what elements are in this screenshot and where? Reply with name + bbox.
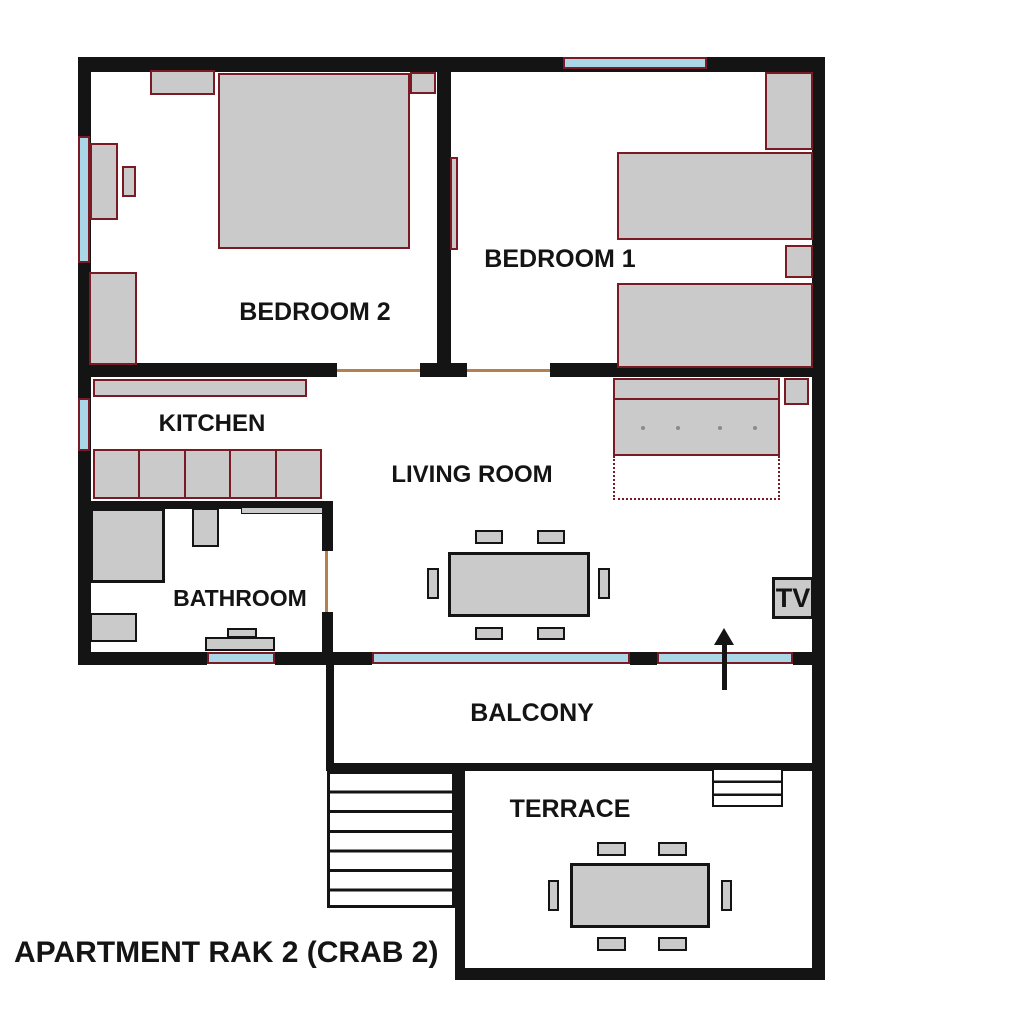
bedroom2-nightstand bbox=[410, 72, 436, 94]
wall-terrace-left bbox=[455, 763, 465, 980]
terrace-chair bbox=[548, 880, 559, 911]
tv-label: TV bbox=[776, 583, 811, 614]
window-bedroom1 bbox=[563, 57, 707, 69]
kitchen-counter-unit bbox=[95, 451, 138, 497]
bedroom2-dresser bbox=[90, 143, 118, 220]
bathroom-shower bbox=[90, 508, 165, 583]
terrace-steps bbox=[712, 768, 783, 807]
dining-chair bbox=[537, 530, 565, 544]
dining-table bbox=[448, 552, 590, 617]
kitchen-counter-unit bbox=[186, 451, 229, 497]
sofa-button bbox=[641, 426, 645, 430]
dining-chair bbox=[598, 568, 610, 599]
kitchen-counter-unit bbox=[140, 451, 183, 497]
sofa-bed-extension bbox=[613, 456, 780, 500]
wall bbox=[275, 652, 372, 665]
door-bedroom2 bbox=[337, 369, 420, 372]
wall-balcony-left bbox=[326, 665, 334, 771]
window-kitchen bbox=[78, 398, 90, 451]
dining-chair bbox=[537, 627, 565, 640]
room-label-bedroom1: BEDROOM 1 bbox=[460, 246, 660, 274]
kitchen-counter-unit bbox=[231, 451, 274, 497]
kitchen-counter bbox=[93, 449, 322, 499]
kitchen-counter-unit bbox=[277, 451, 320, 497]
exterior-stairs bbox=[327, 771, 455, 908]
entrance-arrow-head-icon bbox=[714, 628, 734, 645]
bathroom-sink bbox=[192, 508, 219, 547]
terrace-table bbox=[570, 863, 710, 928]
window-living-room-1 bbox=[372, 652, 630, 664]
sofa-button bbox=[676, 426, 680, 430]
tv-box: TV bbox=[772, 577, 814, 619]
wall bbox=[322, 501, 333, 551]
room-label-bedroom2: BEDROOM 2 bbox=[215, 299, 415, 327]
sofa-backrest bbox=[613, 378, 780, 400]
terrace-chair bbox=[658, 842, 687, 856]
side-table bbox=[784, 378, 809, 405]
bedroom2-double-bed bbox=[218, 73, 410, 249]
wall bbox=[78, 652, 207, 665]
sofa-button bbox=[718, 426, 722, 430]
bedroom1-nightstand bbox=[785, 245, 813, 278]
wall bbox=[420, 363, 467, 377]
room-label-living-room: LIVING ROOM bbox=[372, 462, 572, 488]
window-bedroom2 bbox=[78, 136, 90, 263]
bedroom1-bed-1 bbox=[617, 152, 813, 240]
wall bbox=[630, 652, 657, 665]
bedroom1-wardrobe bbox=[765, 72, 813, 150]
bedroom2-stool bbox=[122, 166, 136, 197]
bathroom-cabinet bbox=[90, 613, 137, 642]
room-label-balcony: BALCONY bbox=[432, 700, 632, 728]
floor-plan: TV BEDROOM 2 BEDROOM 1 KITCHEN LIVING RO… bbox=[0, 0, 1024, 1010]
bedroom2-shelf bbox=[150, 70, 215, 95]
bathroom-shelf bbox=[241, 507, 323, 514]
wall-terrace-bottom bbox=[455, 968, 825, 980]
window-bathroom bbox=[207, 652, 275, 664]
sofa-seat bbox=[613, 398, 780, 456]
bathroom-toilet bbox=[205, 637, 275, 651]
bedroom1-bed-2 bbox=[617, 283, 813, 368]
wall bbox=[78, 363, 337, 377]
kitchen-shelf bbox=[93, 379, 307, 397]
wall bbox=[812, 57, 825, 980]
dining-chair bbox=[427, 568, 439, 599]
room-label-kitchen: KITCHEN bbox=[112, 411, 312, 437]
dining-chair bbox=[475, 530, 503, 544]
terrace-chair bbox=[658, 937, 687, 951]
door-bedroom1 bbox=[467, 369, 550, 372]
wall bbox=[793, 652, 825, 665]
dining-chair bbox=[475, 627, 503, 640]
page-title: APARTMENT RAK 2 (CRAB 2) bbox=[14, 936, 438, 970]
terrace-chair bbox=[597, 937, 626, 951]
room-label-bathroom: BATHROOM bbox=[140, 586, 340, 611]
door-leaf-bedroom1 bbox=[450, 157, 458, 250]
bedroom2-wardrobe bbox=[89, 272, 137, 365]
wall-bedroom-divider bbox=[437, 57, 451, 377]
terrace-chair bbox=[597, 842, 626, 856]
room-label-terrace: TERRACE bbox=[470, 796, 670, 824]
sofa-button bbox=[753, 426, 757, 430]
terrace-chair bbox=[721, 880, 732, 911]
entrance-arrow bbox=[722, 643, 727, 690]
